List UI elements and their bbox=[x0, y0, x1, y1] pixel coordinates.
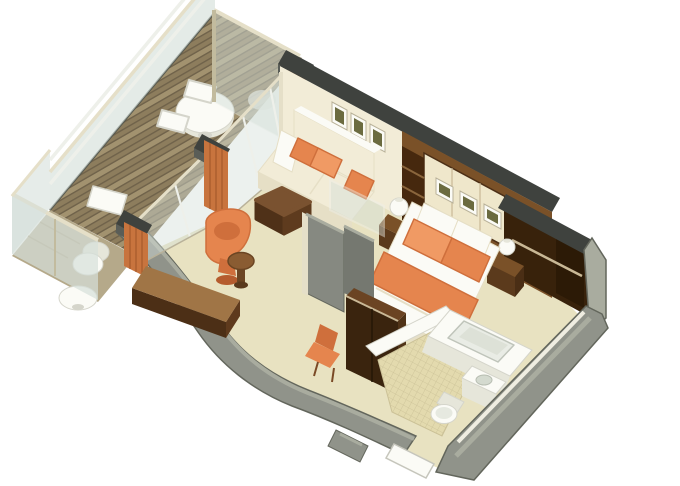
floor-plan-rendering: 3D isometric cutaway rendering of a suit… bbox=[0, 0, 680, 486]
suite-cutaway-svg: 3D isometric cutaway rendering of a suit… bbox=[0, 0, 680, 486]
neighbor-table-base bbox=[72, 304, 84, 310]
table-lamp-left bbox=[390, 198, 408, 216]
table-lamp-right bbox=[499, 239, 515, 255]
partition-edge-strip bbox=[302, 212, 308, 296]
curtain-middle bbox=[204, 140, 228, 218]
